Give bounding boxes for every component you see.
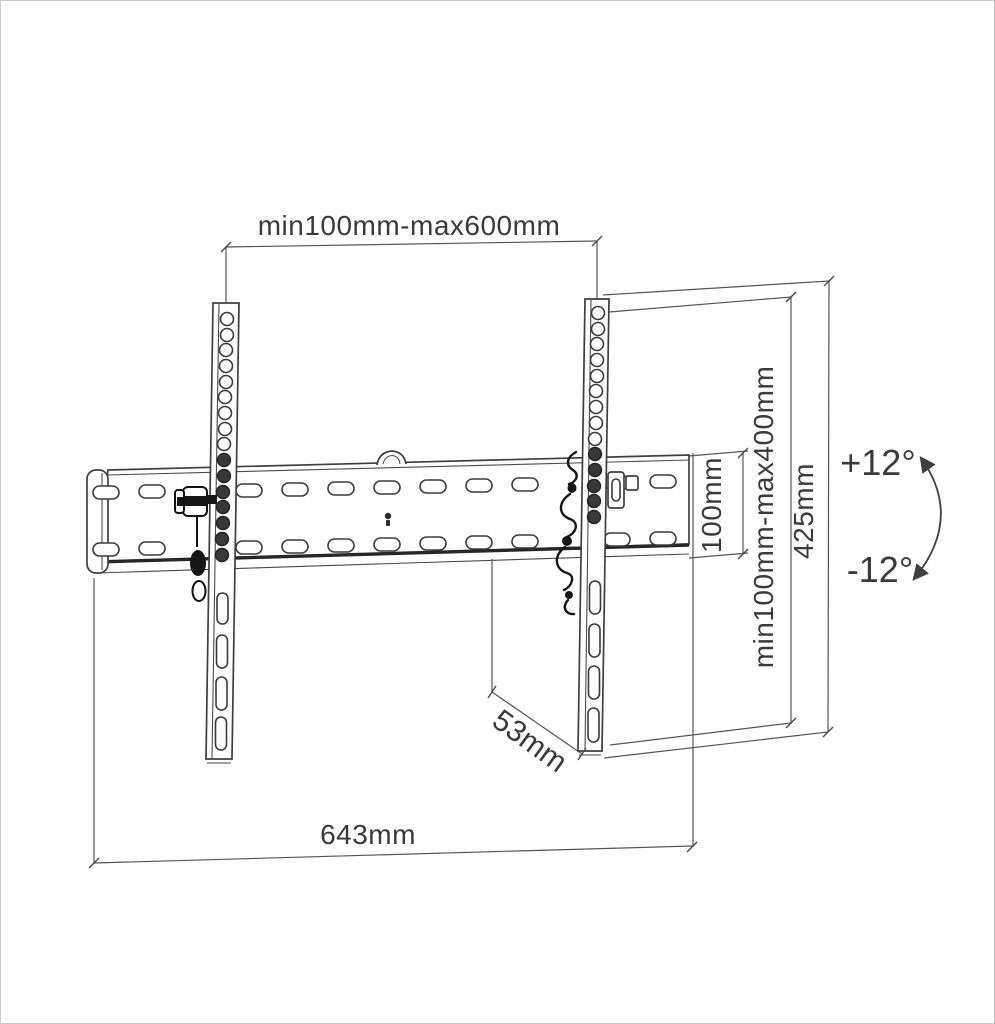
- tilt-down-label: -12°: [847, 549, 913, 590]
- dim-label-top-width: min100mm-max600mm: [258, 210, 561, 241]
- left-vesa-rail: [206, 303, 239, 763]
- dim-top-width: min100mm-max600mm: [221, 210, 602, 304]
- tilt-arc-arrow: [914, 458, 941, 579]
- dim-label-depth: 53mm: [486, 703, 573, 779]
- dim-plate-height: 100mm: [689, 448, 748, 559]
- safety-tab: [377, 451, 406, 465]
- tilt-up-label: +12°: [840, 442, 915, 483]
- tv-mount-diagram: min100mm-max600mm min100mm-max400mm 425m…: [1, 1, 995, 1024]
- right-vesa-rail: [578, 299, 609, 755]
- dim-label-total-height: 425mm: [788, 463, 819, 559]
- tilt-angle-annotation: +12° -12°: [840, 442, 941, 590]
- dim-label-bottom-width: 643mm: [320, 819, 416, 850]
- dim-label-plate-height: 100mm: [696, 457, 727, 553]
- dim-label-vesa-vertical: min100mm-max400mm: [748, 366, 779, 669]
- diagram-canvas: min100mm-max600mm min100mm-max400mm 425m…: [0, 0, 995, 1024]
